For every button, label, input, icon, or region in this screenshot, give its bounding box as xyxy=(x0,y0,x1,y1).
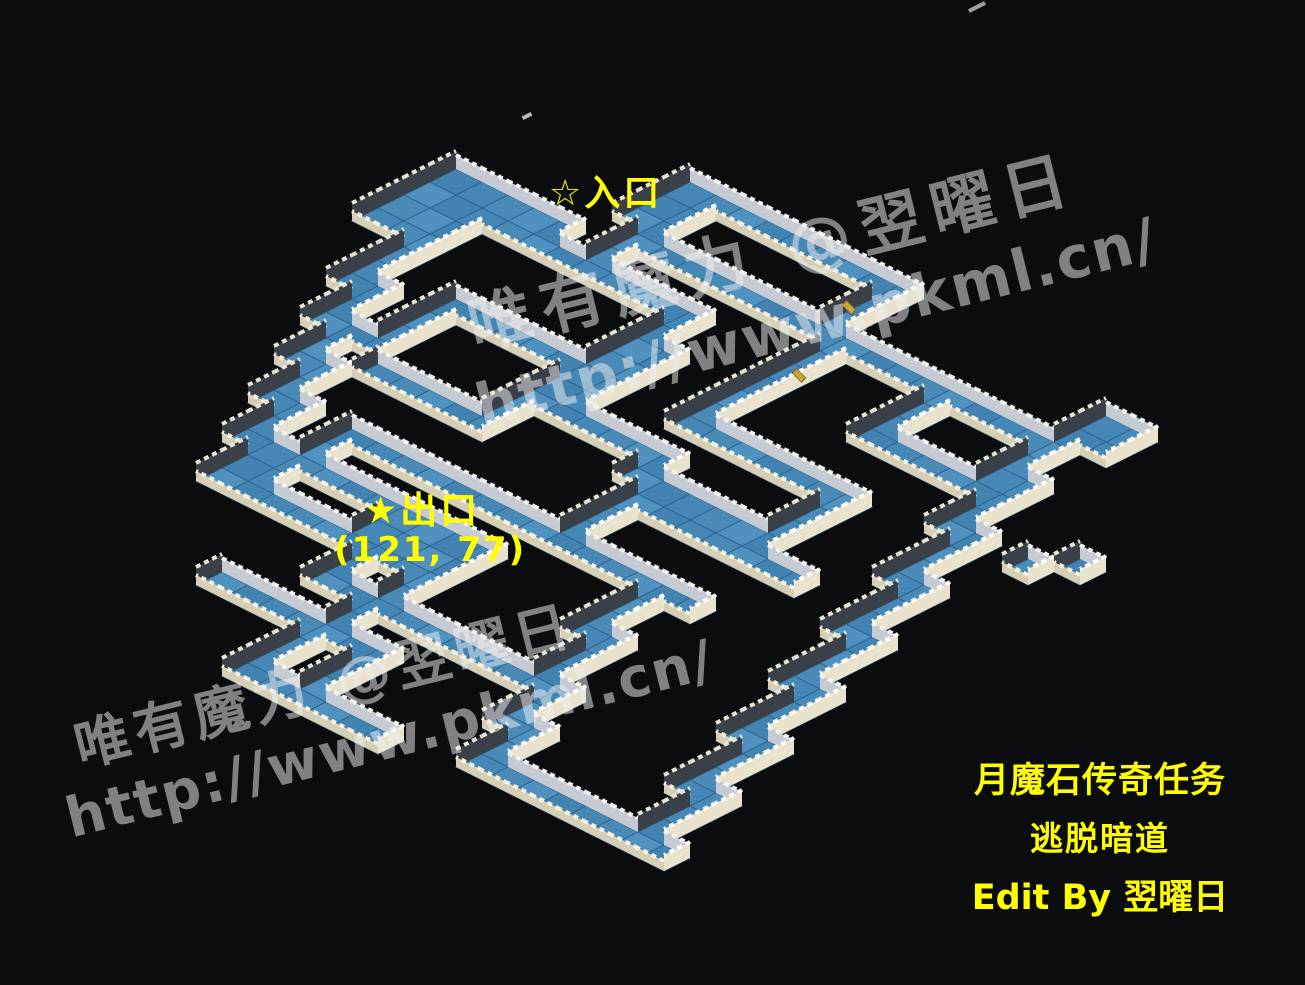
exit-label: ★出口 xyxy=(364,492,480,529)
map-subtitle: 逃脱暗道 xyxy=(950,812,1250,860)
map-caption: 月魔石传奇任务 逃脱暗道 Edit By 翌曜日 xyxy=(950,752,1250,920)
exit-coordinates: (121, 77) xyxy=(334,533,526,567)
entrance-label: ☆入口 xyxy=(549,176,662,212)
quest-title: 月魔石传奇任务 xyxy=(950,752,1250,803)
map-screenshot: 唯有魔力 @翌曜日 http://www.pkml.cn/ 唯有魔力 @翌曜日 … xyxy=(0,0,1305,985)
credit-line: Edit By 翌曜日 xyxy=(950,869,1250,920)
